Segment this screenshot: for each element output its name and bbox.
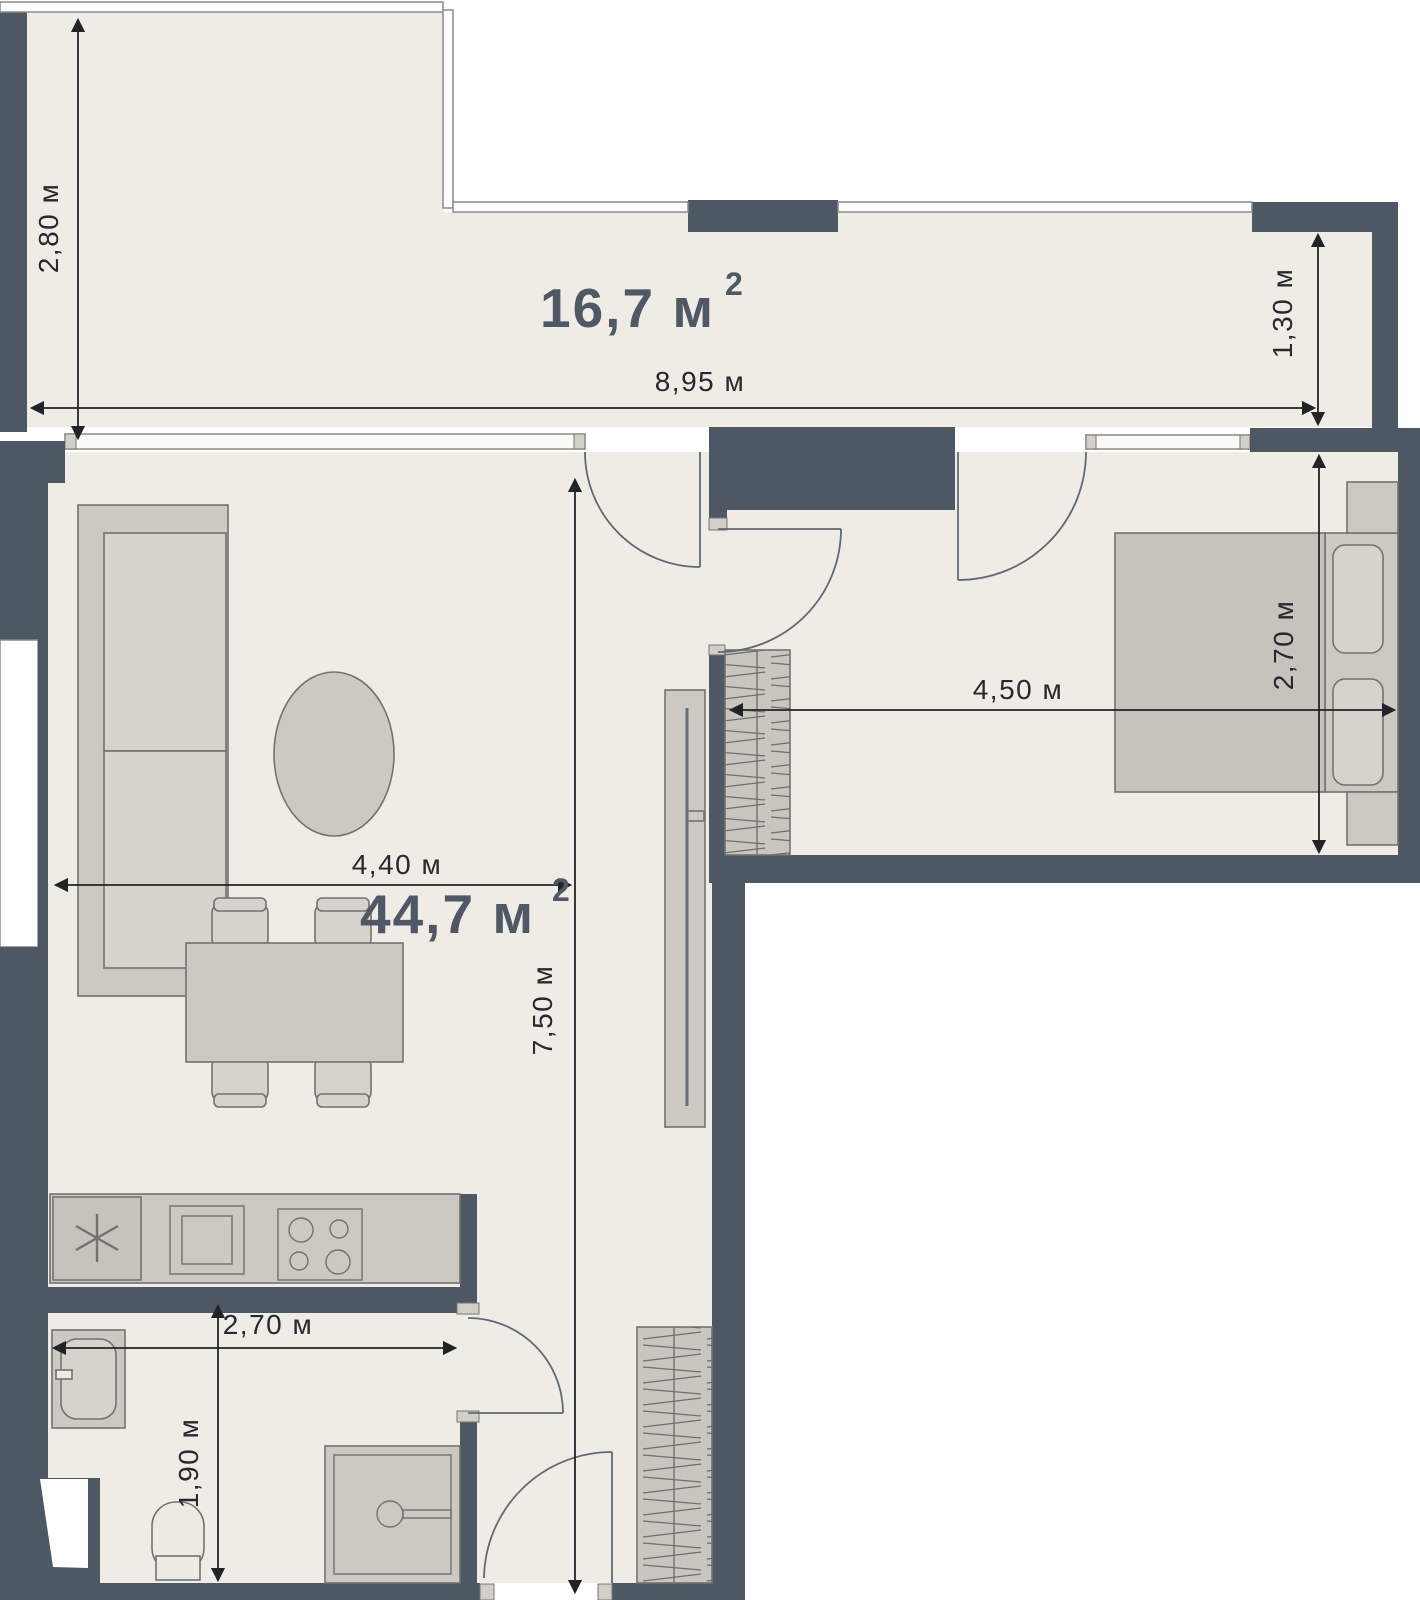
bottom-wall-left [100, 1583, 480, 1600]
railing-top [0, 2, 443, 12]
sofa-cushion-bottom [104, 751, 226, 968]
entry-niche-leg [709, 510, 727, 518]
dining-chair-back [317, 1094, 369, 1107]
dim-label-kitchen-width: 2,70 м [223, 1309, 314, 1340]
left-window-sliver [38, 640, 48, 947]
dim-label-bedroom-width: 4,50 м [973, 674, 1064, 705]
bedroom-window-cap-right [1240, 435, 1250, 449]
terrace-area-label: 16,7 м [540, 277, 715, 339]
living-area-label: 44,7 м [360, 883, 535, 945]
dim-label-terrace-right-depth: 1,30 м [1267, 268, 1298, 359]
dim-label-bedroom-depth: 2,70 м [1268, 600, 1299, 691]
pillow [1333, 545, 1383, 653]
nightstand [1347, 482, 1398, 533]
bedroom-bottom-wall [709, 855, 1420, 883]
terrace-mid-wall-block [688, 200, 838, 232]
left-step-block [0, 441, 65, 483]
living-area-sup: 2 [552, 872, 570, 908]
left-wall-lower [0, 947, 48, 1478]
tv-mount [687, 811, 704, 821]
dim-label-terrace-width: 8,95 м [655, 366, 746, 397]
dim-label-bathroom-depth: 1,90 м [173, 1418, 204, 1509]
closet-door-jamb-bottom [709, 645, 725, 655]
bedroom-wardrobe [725, 650, 790, 855]
entry-niche-block [709, 427, 955, 510]
railing-right-vertical [443, 10, 453, 208]
floor-plan: 2,80 м 8,95 м 1,30 м 4,40 м 7,50 м 4,50 … [0, 0, 1420, 1600]
bedroom-window-cap-left [1086, 435, 1096, 449]
left-wall-upper [0, 483, 48, 643]
terrace-topright-wall [1252, 202, 1398, 232]
dining-table [186, 943, 403, 1062]
bath-door-jamb-top [457, 1303, 479, 1314]
closet-wall [709, 655, 725, 855]
bath-right-wall [460, 1413, 477, 1600]
corridor-right-wall [712, 883, 745, 1600]
nightstand [1347, 792, 1398, 845]
dining-chair-back [214, 898, 266, 911]
entry-jamb-left [480, 1584, 494, 1600]
toilet-tank [156, 1556, 200, 1580]
bedroom-floor-top [955, 452, 1398, 512]
terrace-area-sup: 2 [725, 266, 743, 302]
dim-label-apartment-depth: 7,50 м [527, 965, 558, 1056]
dim-label-living-width: 4,40 м [352, 849, 443, 880]
living-window-cap-right [574, 434, 585, 449]
coffee-table [274, 672, 394, 836]
living-window-cap-left [65, 434, 76, 449]
shower-tray [325, 1446, 460, 1583]
sofa-cushion-top [104, 533, 226, 751]
railing-mid-right [838, 202, 1252, 212]
left-window-opening [0, 640, 38, 947]
terrace-left-wall [0, 10, 27, 432]
terrace-right-wall [1372, 202, 1398, 428]
tv-console [665, 690, 705, 1127]
dining-chair-back [214, 1094, 266, 1107]
floor-plan-canvas: 2,80 м 8,95 м 1,30 м 4,40 м 7,50 м 4,50 … [0, 0, 1420, 1600]
kitchen-wall-stub [460, 1194, 477, 1287]
railing-mid-left [453, 202, 688, 212]
entry-jamb-right [598, 1584, 612, 1600]
bedroom-window [1086, 435, 1250, 449]
dim-label-terrace-height: 2,80 м [33, 183, 64, 274]
bedroom-right-wall [1398, 428, 1420, 883]
kitchen-furniture [50, 1194, 460, 1283]
hallway-wardrobe [637, 1327, 712, 1583]
pillow [1333, 679, 1383, 785]
washbasin-tap [56, 1370, 72, 1379]
bedroom-topright-wall [1250, 428, 1398, 452]
living-window [65, 434, 585, 449]
